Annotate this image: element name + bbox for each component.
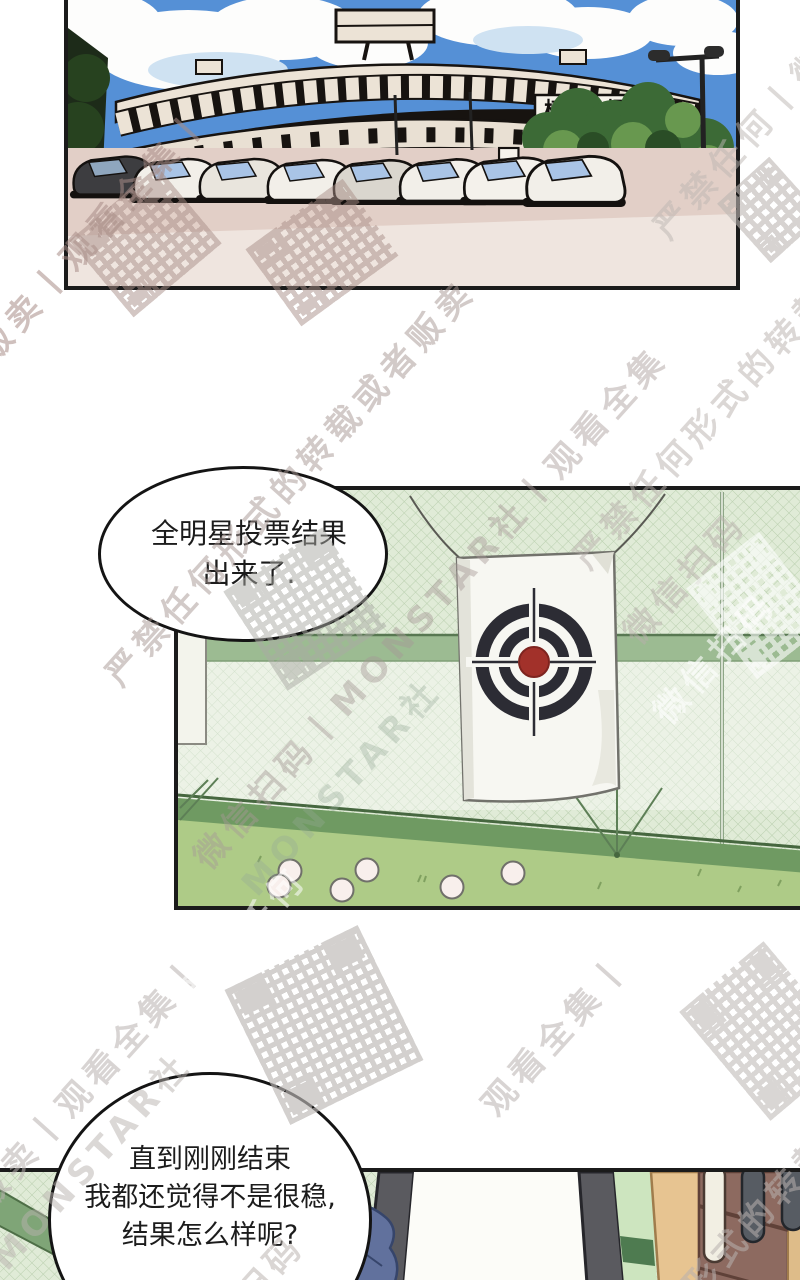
watermark-text-line: 观看全集丨 [468, 940, 642, 1125]
qr-finder-square [320, 925, 374, 978]
bubble2-line1: 直到刚刚结束 [129, 1141, 291, 1179]
bubble1-line1: 全明星投票结果 [151, 514, 347, 554]
bubble2-line3: 结果怎么样呢? [122, 1217, 298, 1255]
target-banner [457, 552, 619, 802]
side-banner [178, 628, 206, 744]
comic-page: 棒球场 [0, 0, 800, 1280]
bat-dark-2 [782, 1172, 800, 1230]
bat-white [704, 1172, 725, 1262]
qr-finder-square [755, 157, 783, 186]
stadium-illustration: 棒球场 [68, 0, 736, 286]
bubble2-line2: 我都还觉得不是很稳, [84, 1179, 336, 1217]
panel-stadium: 棒球场 [64, 0, 740, 290]
bubble1-line2: 出来了. [203, 554, 296, 594]
qr-finder-square [679, 992, 726, 1040]
bat-rack [651, 1172, 800, 1280]
qr-finder-square [225, 972, 279, 1025]
qr-finder-square [287, 286, 329, 326]
speech-bubble-1: 全明星投票结果 出来了. [98, 466, 388, 642]
qr-finder-square [740, 941, 787, 989]
qr-finder-square [747, 1073, 794, 1121]
qr-watermark [679, 941, 800, 1120]
baseboard [620, 1236, 655, 1266]
qr-finder-square [757, 235, 785, 264]
dugout-opening [404, 1172, 587, 1280]
speech-bubble-2: 直到刚刚结束 我都还觉得不是很稳, 结果怎么样呢? [48, 1072, 372, 1280]
bat-dark-1 [742, 1172, 764, 1242]
